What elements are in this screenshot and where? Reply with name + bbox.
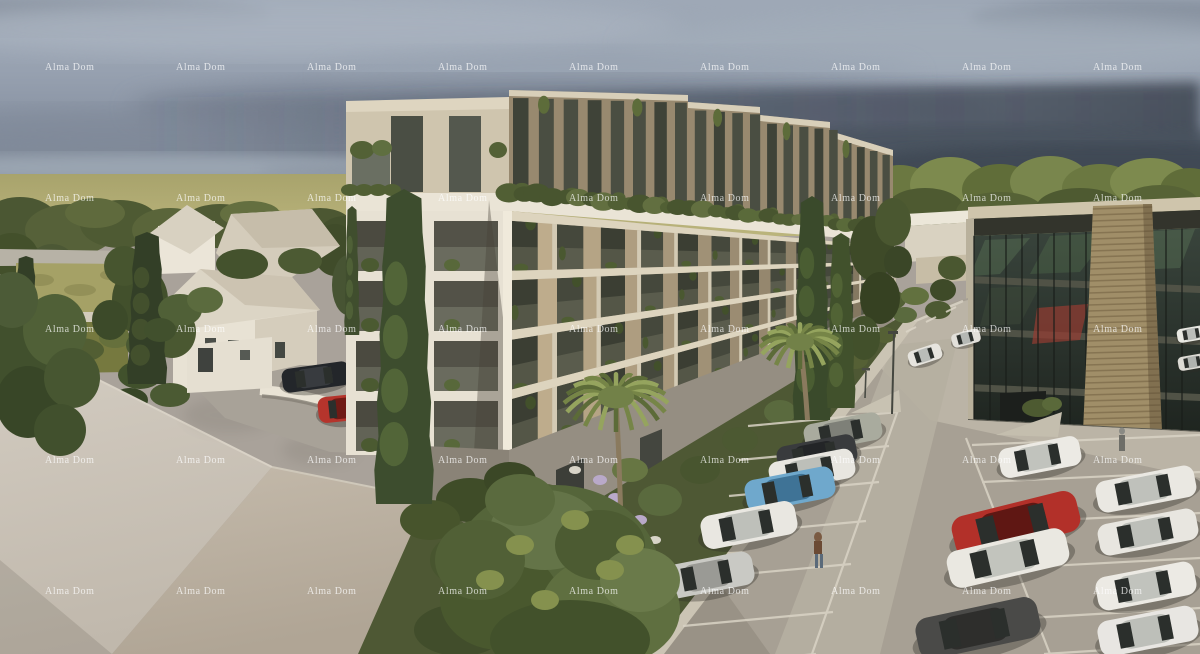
svg-text:Alma Dom: Alma Dom bbox=[831, 586, 881, 597]
svg-text:Alma Dom: Alma Dom bbox=[569, 62, 619, 73]
svg-text:Alma Dom: Alma Dom bbox=[962, 586, 1012, 597]
svg-text:Alma Dom: Alma Dom bbox=[438, 455, 488, 466]
svg-text:Alma Dom: Alma Dom bbox=[569, 324, 619, 335]
svg-text:Alma Dom: Alma Dom bbox=[700, 455, 750, 466]
svg-text:Alma Dom: Alma Dom bbox=[307, 62, 357, 73]
svg-text:Alma Dom: Alma Dom bbox=[45, 62, 95, 73]
svg-text:Alma Dom: Alma Dom bbox=[831, 455, 881, 466]
svg-text:Alma Dom: Alma Dom bbox=[45, 586, 95, 597]
svg-text:Alma Dom: Alma Dom bbox=[831, 193, 881, 204]
svg-text:Alma Dom: Alma Dom bbox=[700, 62, 750, 73]
svg-text:Alma Dom: Alma Dom bbox=[569, 193, 619, 204]
svg-text:Alma Dom: Alma Dom bbox=[45, 324, 95, 335]
svg-text:Alma Dom: Alma Dom bbox=[962, 455, 1012, 466]
svg-text:Alma Dom: Alma Dom bbox=[176, 455, 226, 466]
svg-text:Alma Dom: Alma Dom bbox=[962, 62, 1012, 73]
svg-text:Alma Dom: Alma Dom bbox=[438, 586, 488, 597]
svg-text:Alma Dom: Alma Dom bbox=[307, 324, 357, 335]
svg-text:Alma Dom: Alma Dom bbox=[176, 193, 226, 204]
svg-text:Alma Dom: Alma Dom bbox=[45, 193, 95, 204]
svg-text:Alma Dom: Alma Dom bbox=[1093, 193, 1143, 204]
svg-text:Alma Dom: Alma Dom bbox=[176, 324, 226, 335]
svg-text:Alma Dom: Alma Dom bbox=[1093, 62, 1143, 73]
svg-text:Alma Dom: Alma Dom bbox=[700, 586, 750, 597]
svg-text:Alma Dom: Alma Dom bbox=[831, 62, 881, 73]
svg-text:Alma Dom: Alma Dom bbox=[700, 324, 750, 335]
svg-text:Alma Dom: Alma Dom bbox=[438, 324, 488, 335]
svg-text:Alma Dom: Alma Dom bbox=[307, 455, 357, 466]
svg-text:Alma Dom: Alma Dom bbox=[569, 586, 619, 597]
svg-text:Alma Dom: Alma Dom bbox=[831, 324, 881, 335]
svg-text:Alma Dom: Alma Dom bbox=[438, 193, 488, 204]
svg-text:Alma Dom: Alma Dom bbox=[569, 455, 619, 466]
svg-text:Alma Dom: Alma Dom bbox=[307, 193, 357, 204]
svg-text:Alma Dom: Alma Dom bbox=[176, 62, 226, 73]
svg-text:Alma Dom: Alma Dom bbox=[176, 586, 226, 597]
svg-text:Alma Dom: Alma Dom bbox=[307, 586, 357, 597]
svg-text:Alma Dom: Alma Dom bbox=[962, 193, 1012, 204]
svg-text:Alma Dom: Alma Dom bbox=[45, 455, 95, 466]
svg-text:Alma Dom: Alma Dom bbox=[438, 62, 488, 73]
svg-text:Alma Dom: Alma Dom bbox=[1093, 324, 1143, 335]
svg-text:Alma Dom: Alma Dom bbox=[1093, 586, 1143, 597]
svg-text:Alma Dom: Alma Dom bbox=[1093, 455, 1143, 466]
svg-text:Alma Dom: Alma Dom bbox=[700, 193, 750, 204]
svg-text:Alma Dom: Alma Dom bbox=[962, 324, 1012, 335]
